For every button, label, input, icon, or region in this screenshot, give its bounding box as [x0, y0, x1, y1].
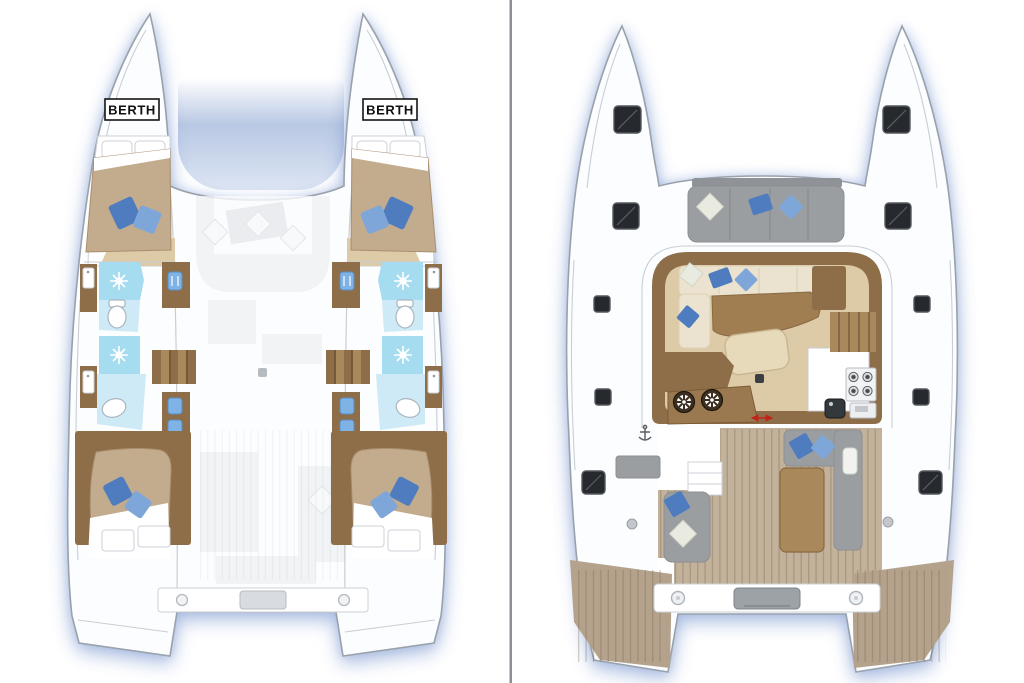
panel-divider — [510, 0, 513, 683]
seat-cushion — [843, 448, 857, 474]
deck-hatch-icon — [913, 389, 929, 405]
deck-hatch-icon — [613, 203, 639, 229]
sink-icon — [83, 371, 94, 393]
berth-label-port: BERTH — [105, 99, 159, 120]
oven-display — [855, 406, 868, 412]
deck-hatch-icon — [595, 389, 611, 405]
galley — [808, 348, 876, 418]
berth-label-starboard-text: BERTH — [366, 103, 414, 118]
salon-table — [724, 328, 791, 376]
cockpit-bench-port — [616, 456, 660, 478]
companionway-stairs-port — [152, 350, 196, 384]
swim-platform-port — [570, 560, 672, 668]
vanity-sink-icon — [168, 398, 182, 414]
compression-post — [755, 374, 764, 383]
toilet-icon — [108, 306, 126, 328]
berth-label-port-text: BERTH — [108, 103, 156, 118]
galley-cabinet — [812, 266, 846, 310]
aft-cabin-port — [75, 431, 191, 558]
deck-plans-canvas: BERTH BERTH — [0, 0, 1024, 683]
deck-hatch-icon — [614, 106, 641, 133]
deck-hatch-icon — [582, 471, 605, 494]
bed-pillow — [102, 530, 134, 551]
bed-pillow — [138, 526, 170, 547]
deck-hatch-icon — [594, 296, 610, 312]
stern-beam-lower — [158, 588, 368, 612]
stern-beam-main — [654, 584, 880, 612]
berth-label-starboard: BERTH — [363, 99, 417, 120]
deck-hatch-icon — [883, 106, 910, 133]
bow-lounge-bench — [688, 178, 844, 242]
catamaran-deck-plans: BERTH BERTH — [0, 0, 1024, 683]
cockpit-steps — [688, 462, 722, 495]
lower-deck-plan: BERTH BERTH — [68, 14, 447, 656]
port-inner-cabinet-fwd — [162, 262, 190, 308]
deck-fitting — [627, 519, 637, 529]
faucet-icon — [829, 402, 833, 406]
winch-icon — [674, 392, 695, 413]
deck-hatch-icon — [914, 296, 930, 312]
transom-bolt-icon — [339, 595, 350, 606]
main-deck-plan — [567, 26, 958, 672]
cockpit-table — [780, 468, 824, 552]
galley-sink-icon — [825, 399, 845, 418]
forward-cabin-port — [86, 136, 175, 266]
deck-hatch-icon — [919, 471, 942, 494]
cockpit-seat-port — [663, 490, 710, 562]
transom-bolt-icon — [177, 595, 188, 606]
deck-fitting — [883, 517, 893, 527]
companionway-stairs-starboard — [830, 312, 876, 352]
salon — [652, 252, 882, 424]
deck-hatch-icon — [885, 203, 911, 229]
winch-icon — [702, 390, 723, 411]
vanity-sink-icon — [168, 272, 182, 290]
